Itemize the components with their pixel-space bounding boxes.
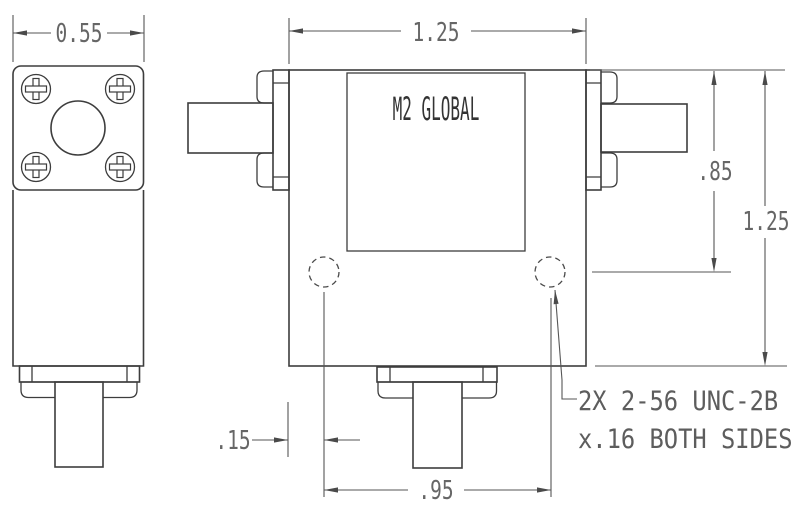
side-bottom-connector — [20, 366, 140, 467]
leader-arrow-icon — [554, 290, 559, 304]
arrow-up-icon — [762, 71, 767, 85]
screw-bottom-left — [22, 153, 51, 182]
leader-line — [555, 290, 577, 399]
arrow-left-icon — [324, 487, 338, 492]
tapped-hole-left — [309, 257, 339, 287]
screw-slot — [26, 164, 47, 170]
dim-front-height: 1.25 — [743, 71, 790, 366]
thread-note-line1: 2X 2-56 UNC-2B — [578, 385, 778, 417]
screw-profile-bottom — [257, 153, 273, 187]
connector-barrel — [188, 103, 273, 153]
connector-bore — [51, 101, 105, 155]
dim-hole-offset: .15 — [215, 402, 360, 457]
dim-holes-from-top: .85 — [697, 71, 732, 272]
screw-profile-top — [601, 72, 617, 103]
screw-slot — [26, 86, 47, 92]
dim-side-width: 0.55 — [13, 15, 144, 62]
dim-hole-spacing-text: .95 — [418, 476, 453, 505]
dim-front-width-text: 1.25 — [413, 18, 460, 47]
connector-barrel — [55, 382, 103, 467]
screw-profile-top — [257, 71, 273, 103]
front-right-connector — [586, 70, 687, 190]
arrow-down-icon — [711, 258, 716, 272]
arrow-right-icon — [537, 487, 551, 492]
connector-plate — [586, 70, 601, 190]
dim-holes-from-top-text: .85 — [697, 157, 732, 186]
hex-nut — [377, 367, 497, 382]
screw-slot — [110, 164, 131, 170]
front-view: M2 GLOBAL — [188, 18, 793, 506]
technical-drawing: 0.55 — [0, 0, 800, 520]
arrow-right-icon — [130, 30, 144, 35]
nut-shoulder-right — [103, 382, 137, 398]
hex-nut-flats — [390, 367, 483, 382]
dim-side-width-text: 0.55 — [56, 19, 103, 48]
dim-hole-spacing: .95 — [324, 292, 551, 506]
tapped-hole-right — [535, 257, 565, 287]
dim-hole-offset-text: .15 — [215, 426, 250, 455]
screw-top-right — [106, 75, 135, 104]
tapped-holes — [309, 257, 565, 287]
brand-label: M2 GLOBAL — [393, 91, 480, 128]
arrow-left-icon — [324, 437, 338, 442]
side-flange — [13, 66, 144, 190]
drawing-canvas: 0.55 — [0, 0, 800, 520]
hex-nut — [20, 366, 140, 382]
arrow-down-icon — [762, 352, 767, 366]
arrow-right-icon — [274, 437, 288, 442]
side-view: 0.55 — [13, 15, 144, 467]
connector-barrel — [413, 382, 462, 468]
dim-front-width: 1.25 — [289, 18, 586, 64]
arrow-left-icon — [13, 30, 27, 35]
arrow-left-icon — [289, 28, 303, 33]
nut-shoulder-right — [462, 382, 497, 398]
arrow-right-icon — [572, 28, 586, 33]
screw-slot — [110, 86, 131, 92]
hex-nut-flats — [32, 366, 127, 382]
screw-bottom-right — [106, 153, 135, 182]
plate-edges — [273, 83, 289, 177]
screw-top-left — [22, 75, 51, 104]
front-left-connector — [188, 70, 289, 190]
dim-front-height-text: 1.25 — [743, 207, 790, 236]
thread-note-line2: x.16 BOTH SIDES — [578, 423, 793, 455]
nut-shoulder-left — [378, 382, 413, 398]
plate-edges — [586, 83, 601, 177]
thread-note: 2X 2-56 UNC-2B x.16 BOTH SIDES — [554, 290, 793, 454]
screw-profile-bottom — [601, 153, 617, 187]
dim-extension-lines — [324, 292, 551, 497]
connector-barrel — [601, 104, 687, 152]
arrow-up-icon — [711, 71, 716, 85]
front-bottom-connector — [377, 367, 497, 468]
nut-shoulder-left — [21, 382, 55, 398]
side-body-outline — [13, 190, 144, 366]
connector-plate — [273, 70, 289, 190]
